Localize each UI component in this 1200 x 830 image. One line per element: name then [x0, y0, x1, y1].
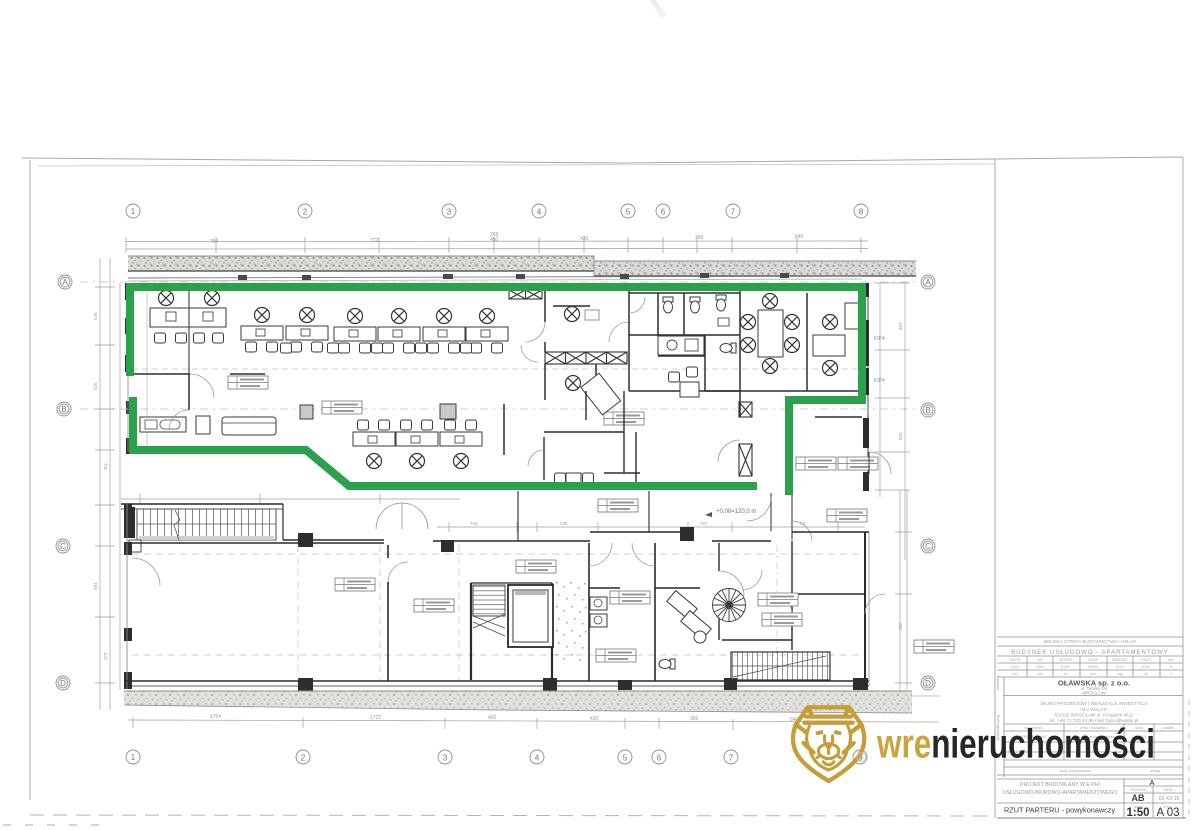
svg-text:C: C [60, 542, 66, 551]
svg-text:USŁUGOWO-BIUROWO-APARTAMENTOWE: USŁUGOWO-BIUROWO-APARTAMENTOWEGO [1003, 790, 1118, 796]
svg-text:"M 2 WALAS": "M 2 WALAS" [1080, 707, 1109, 712]
svg-text:BIURO PROJEKTÓW I REALIZACJI I: BIURO PROJEKTÓW I REALIZACJI INWESTYCJI [1041, 700, 1147, 706]
svg-text:R: R [859, 754, 864, 761]
svg-text:NR: NR [1168, 658, 1174, 662]
svg-text:B: B [925, 406, 930, 415]
svg-text:A: A [62, 278, 68, 287]
svg-text:7: 7 [731, 208, 736, 217]
svg-text:OBW: OBW [1035, 665, 1044, 669]
svg-text:FAZA: FAZA [1141, 658, 1151, 662]
svg-text:A 03: A 03 [1156, 807, 1179, 819]
svg-text:BUDYNEK USŁUGOWO - APARTAMENTO: BUDYNEK USŁUGOWO - APARTAMENTOWY [1011, 650, 1169, 656]
svg-text:WROCŁAW: WROCŁAW [1082, 690, 1107, 695]
svg-text:INW: INW [1011, 665, 1019, 669]
svg-text:inwestor: inwestor [995, 674, 1000, 690]
svg-text:A: A [1170, 665, 1173, 669]
svg-text:6: 6 [657, 754, 662, 763]
svg-text:430: 430 [580, 236, 589, 242]
svg-text:DATA: DATA [1088, 658, 1098, 662]
svg-text:684: 684 [93, 582, 98, 590]
svg-text:data opracowania: data opracowania [1059, 768, 1091, 773]
svg-text:3: 3 [447, 208, 452, 217]
svg-text:C: C [925, 542, 931, 551]
svg-text:m2: m2 [1012, 672, 1017, 676]
svg-text:450: 450 [490, 237, 499, 243]
svg-text:744: 744 [470, 521, 478, 526]
svg-text:A: A [925, 278, 931, 287]
svg-text:B: B [61, 405, 66, 414]
svg-text:POZIOM: POZIOM [1131, 788, 1146, 792]
svg-text:NAZW: NAZW [1009, 658, 1021, 662]
svg-text:238: 238 [560, 521, 568, 526]
svg-text:BRANŻA: BRANŻA [1112, 657, 1128, 662]
svg-text:A: A [1149, 780, 1154, 787]
svg-text:PROJEKT BUDOWLANY W E PHI: PROJEKT BUDOWLANY W E PHI [1020, 782, 1100, 788]
svg-text:MIEJSKA STREFA BUDOWNICTWA I U: MIEJSKA STREFA BUDOWNICTWA I USŁUG [1044, 639, 1137, 644]
svg-text:4: 4 [537, 208, 542, 217]
svg-text:360: 360 [690, 716, 699, 722]
svg-text:D: D [925, 679, 931, 688]
svg-text:1:50: 1:50 [1126, 807, 1149, 819]
svg-text:626: 626 [93, 312, 98, 320]
svg-text:DATA: DATA [1163, 788, 1173, 792]
svg-text:podpis: podpis [1162, 725, 1174, 730]
svg-text:+0,00=120,0 m: +0,00=120,0 m [716, 509, 756, 515]
svg-text:525: 525 [93, 382, 98, 390]
svg-text:NR: NR [1037, 658, 1043, 662]
svg-text:D: D [60, 679, 66, 688]
svg-text:KIP4: KIP4 [874, 378, 885, 384]
svg-text:604: 604 [898, 322, 903, 330]
svg-text:722: 722 [370, 238, 379, 244]
svg-text:3: 3 [443, 754, 448, 763]
svg-text:poz: poz [1090, 672, 1096, 676]
svg-text:8: 8 [859, 208, 864, 217]
svg-text:787: 787 [700, 521, 708, 526]
svg-text:2: 2 [303, 208, 308, 217]
svg-text:311: 311 [103, 462, 108, 470]
svg-text:360: 360 [695, 235, 704, 241]
svg-text:505: 505 [898, 622, 903, 630]
svg-text:173: 173 [103, 652, 108, 660]
svg-text:53-025 WROCŁAW ul. Przyjaźni 4: 53-025 WROCŁAW ul. Przyjaźni 4/U1 [1055, 713, 1134, 718]
svg-text:1722: 1722 [370, 715, 381, 721]
svg-text:KIP4: KIP4 [874, 336, 885, 342]
svg-text:5: 5 [623, 754, 628, 763]
svg-text:ADRES: ADRES [1059, 658, 1073, 662]
svg-text:uwagi: uwagi [1150, 768, 1161, 773]
svg-text:450: 450 [488, 715, 497, 721]
svg-text:5: 5 [626, 208, 631, 217]
svg-text:EGZ: EGZ [1142, 665, 1150, 669]
svg-text:1: 1 [131, 753, 136, 762]
svg-text:wrenieruchomości: wrenieruchomości [876, 721, 1155, 767]
svg-text:1754: 1754 [210, 714, 221, 720]
svg-text:7: 7 [729, 754, 734, 763]
svg-text:AB: AB [1132, 793, 1145, 803]
svg-text:EWID: EWID [1061, 665, 1071, 669]
svg-text:640: 640 [795, 234, 804, 240]
svg-text:754: 754 [210, 239, 219, 245]
svg-text:2: 2 [301, 754, 306, 763]
svg-text:4: 4 [535, 754, 540, 763]
svg-text:RZUT PARTERU - powykonawczy: RZUT PARTERU - powykonawczy [1004, 806, 1115, 815]
svg-text:1: 1 [131, 207, 136, 216]
svg-text:wg: wg [1118, 672, 1123, 676]
svg-text:1: 1 [1170, 672, 1172, 676]
svg-text:02-XII-15: 02-XII-15 [1159, 796, 1180, 802]
svg-text:430: 430 [590, 716, 599, 722]
svg-text:633: 633 [898, 432, 903, 440]
svg-text:KOD: KOD [1116, 665, 1124, 669]
svg-text:6: 6 [661, 208, 666, 217]
svg-text:ARKU: ARKU [1088, 665, 1099, 669]
